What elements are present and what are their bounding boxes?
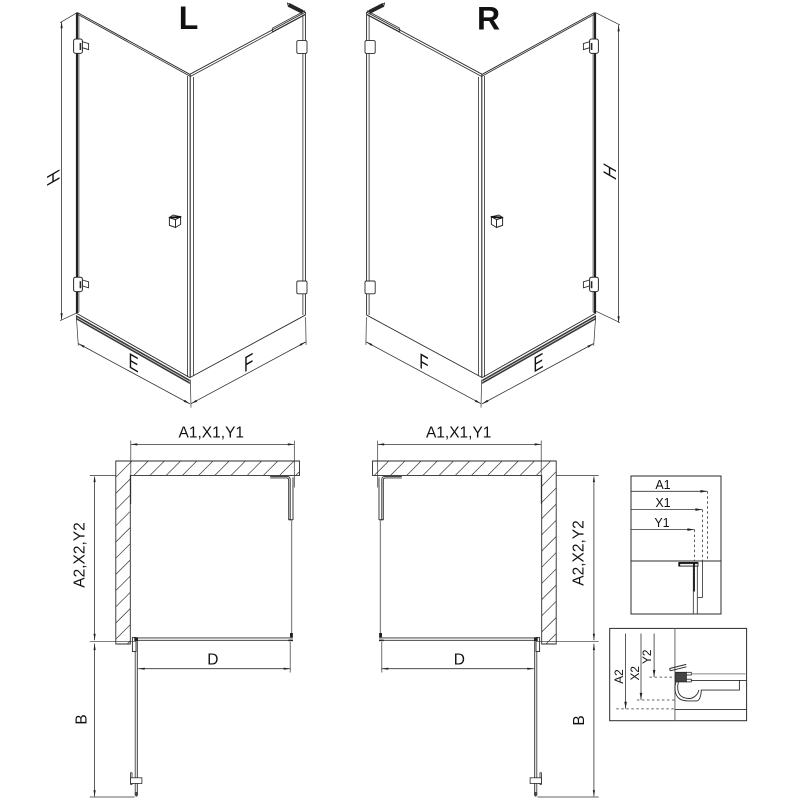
svg-text:X2: X2 xyxy=(628,666,642,680)
svg-text:Y2: Y2 xyxy=(640,650,654,664)
svg-text:R: R xyxy=(477,1,500,37)
svg-text:A1,X1,Y1: A1,X1,Y1 xyxy=(179,424,245,441)
svg-text:A2: A2 xyxy=(612,669,626,683)
svg-text:L: L xyxy=(179,0,199,36)
svg-text:A2,X2,Y2: A2,X2,Y2 xyxy=(571,520,588,586)
svg-text:X1: X1 xyxy=(655,496,670,510)
svg-text:D: D xyxy=(207,652,218,669)
svg-text:A1,X1,Y1: A1,X1,Y1 xyxy=(426,424,492,441)
svg-text:B: B xyxy=(571,715,588,725)
svg-text:Y1: Y1 xyxy=(654,516,669,530)
svg-text:B: B xyxy=(74,714,91,724)
svg-text:A1: A1 xyxy=(655,478,670,492)
svg-text:D: D xyxy=(454,652,465,669)
svg-text:A2,X2,Y2: A2,X2,Y2 xyxy=(72,522,89,588)
